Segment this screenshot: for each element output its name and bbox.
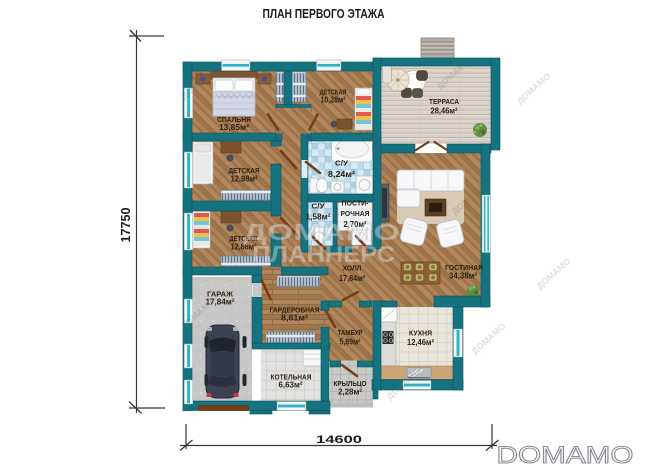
svg-text:17750: 17750: [119, 207, 133, 242]
svg-text:17,84м²: 17,84м²: [339, 274, 365, 283]
svg-text:КУХНЯ: КУХНЯ: [409, 329, 432, 338]
svg-text:6,63м²: 6,63м²: [279, 381, 303, 390]
svg-text:ПЛАН ПЕРВОГО ЭТАЖА: ПЛАН ПЕРВОГО ЭТАЖА: [263, 7, 385, 21]
svg-text:ПЛАННЕРС: ПЛАННЕРС: [252, 241, 395, 267]
svg-text:8,24м²: 8,24м²: [328, 170, 355, 179]
svg-text:С/У: С/У: [335, 159, 348, 168]
svg-text:2,28м²: 2,28м²: [338, 388, 362, 397]
svg-text:12,98м²: 12,98м²: [231, 175, 258, 184]
svg-text:DOMAMO: DOMAMO: [497, 442, 634, 469]
svg-text:ДОМАМО: ДОМАМО: [535, 256, 573, 291]
svg-text:28,46м²: 28,46м²: [431, 107, 458, 116]
svg-text:14600: 14600: [316, 434, 362, 446]
svg-text:ТЕРРАСА: ТЕРРАСА: [429, 97, 459, 106]
svg-text:10,28м²: 10,28м²: [321, 96, 346, 105]
svg-text:13,85м²: 13,85м²: [219, 123, 249, 132]
svg-text:РОЧНАЯ: РОЧНАЯ: [341, 209, 370, 218]
svg-text:ПОСТИ-: ПОСТИ-: [342, 199, 369, 208]
svg-text:С/У: С/У: [312, 202, 325, 211]
svg-text:ДОМАМО: ДОМАМО: [515, 71, 553, 106]
svg-text:ДОМАМО: ДОМАМО: [470, 321, 508, 356]
svg-text:34,38м²: 34,38м²: [449, 272, 477, 281]
svg-text:5,89м²: 5,89м²: [340, 338, 361, 347]
svg-text:8,61м²: 8,61м²: [281, 314, 308, 323]
svg-text:12,46м²: 12,46м²: [407, 338, 434, 347]
svg-text:ТАМБУР: ТАМБУР: [338, 328, 363, 337]
